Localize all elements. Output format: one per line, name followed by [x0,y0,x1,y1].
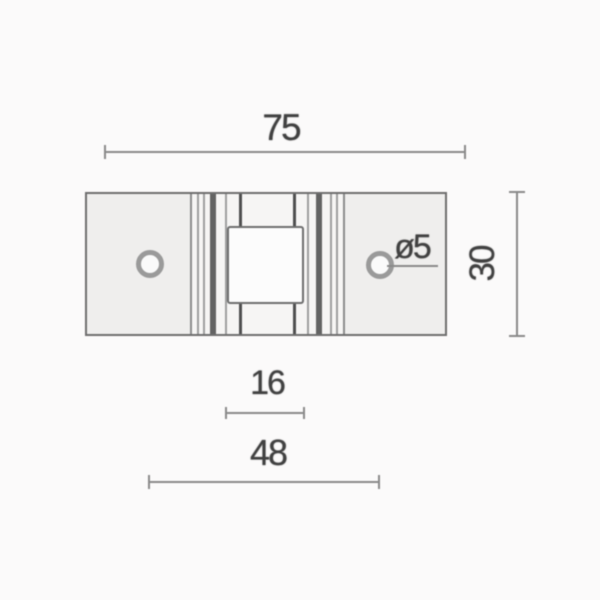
ridge-band [316,194,322,334]
channel-line [239,304,242,334]
dim-tick [303,407,305,419]
ridge-line [197,194,199,334]
dim-tick [464,145,466,159]
dim-tick [378,475,380,489]
dim-spacing-line [149,481,380,483]
channel-line [293,194,296,226]
left-mounting-hole [136,250,164,278]
channel-line [239,194,242,226]
dim-height-label: 30 [466,242,498,286]
ridge-band [210,194,216,334]
dim-square-line [226,412,305,414]
dim-tick [225,407,227,419]
hole-leader-line [387,265,438,267]
ridge-line [203,194,205,334]
technical-drawing: 75 ø5 30 16 48 [0,0,600,600]
hole-diameter-label: ø5 [388,230,436,264]
dim-height-line [516,192,518,337]
ridge-line [307,194,309,334]
dim-square-label: 16 [245,366,289,400]
ridge-line [336,194,338,334]
dim-tick [509,335,525,337]
dim-tick [148,475,150,489]
dim-width-line [105,151,466,153]
ridge-line [343,194,345,334]
ridge-line [330,194,332,334]
dim-tick [104,145,106,159]
dim-spacing-label: 48 [246,435,290,471]
channel-line [293,304,296,334]
ridge-line [190,194,192,334]
center-square-opening [227,226,304,304]
dim-tick [509,191,525,193]
dim-width-label: 75 [257,109,305,146]
plate-body [85,192,447,336]
